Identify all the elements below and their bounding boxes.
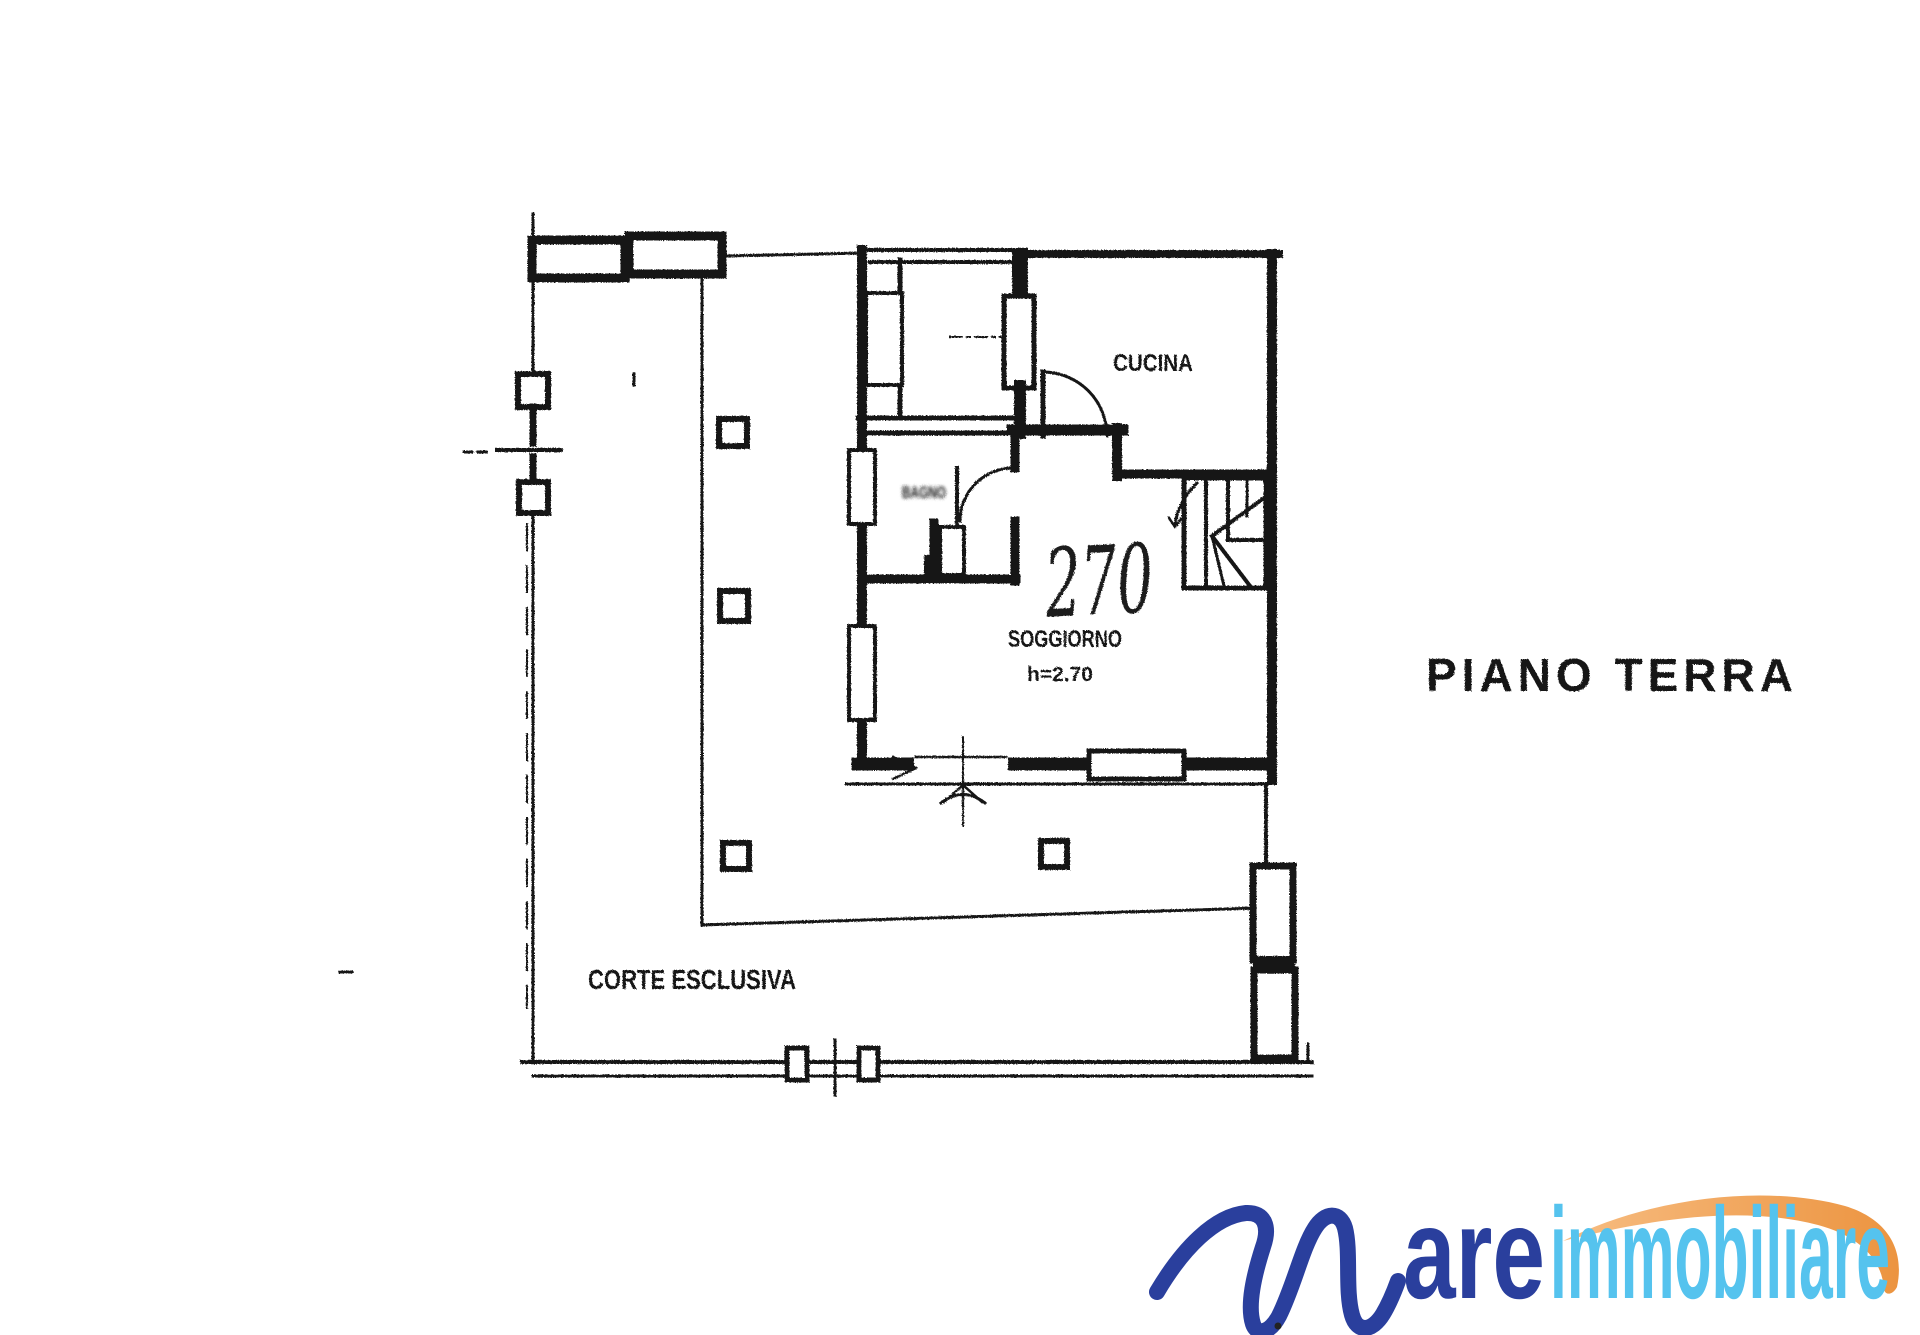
window [849, 626, 875, 720]
bathroom-label: BAGNO [902, 483, 946, 502]
logo-dot [1275, 1323, 1282, 1330]
courtyard-label: CORTE ESCLUSIVA [588, 964, 796, 995]
staircase [1169, 478, 1266, 588]
gate-post [787, 1048, 807, 1080]
floor-title: PIANO TERRA [1426, 649, 1798, 701]
courtyard-bottom-fence [522, 1040, 1312, 1095]
stair-box [1184, 478, 1266, 588]
bath-fixture [940, 527, 964, 575]
door-opening [914, 750, 1008, 776]
planter [532, 240, 625, 278]
planter [629, 236, 722, 274]
stair-winder [1212, 498, 1264, 536]
external-block [1254, 970, 1295, 1058]
pillar [720, 591, 748, 621]
floor-plan-canvas: CUCINA SOGGIORNO h=2.70 BAGNO 270 PIANO … [0, 0, 1920, 1335]
agency-logo: are immobiliare [1157, 1180, 1899, 1331]
right-external-structures [1253, 784, 1295, 1058]
scan-marks [340, 374, 634, 972]
paving-line [702, 908, 1258, 925]
logo-text-are: are [1403, 1180, 1545, 1326]
ceiling-height-note: h=2.70 [1027, 664, 1093, 686]
bath-fixture-mark [924, 555, 936, 575]
floor-plan-drawing: CUCINA SOGGIORNO h=2.70 BAGNO 270 PIANO … [340, 214, 1798, 1095]
boundary-line [723, 253, 862, 256]
handwritten-area-number: 270 [1042, 524, 1156, 640]
pillar [723, 843, 749, 869]
courtyard-left-fence [464, 214, 561, 1063]
kitchen-label: CUCINA [1113, 350, 1193, 377]
fence-post [518, 374, 548, 407]
window [849, 450, 875, 524]
window [866, 293, 902, 385]
window [1089, 751, 1184, 779]
pillar [719, 419, 747, 446]
logo-text-immobiliare: immobiliare [1550, 1180, 1890, 1326]
gate-post [859, 1048, 878, 1080]
pillar [1041, 841, 1067, 867]
logo-letter-m [1157, 1213, 1398, 1331]
fence-post [519, 482, 548, 513]
bath-door-arc [960, 468, 1013, 521]
external-block [1253, 866, 1293, 960]
window [1004, 296, 1034, 388]
